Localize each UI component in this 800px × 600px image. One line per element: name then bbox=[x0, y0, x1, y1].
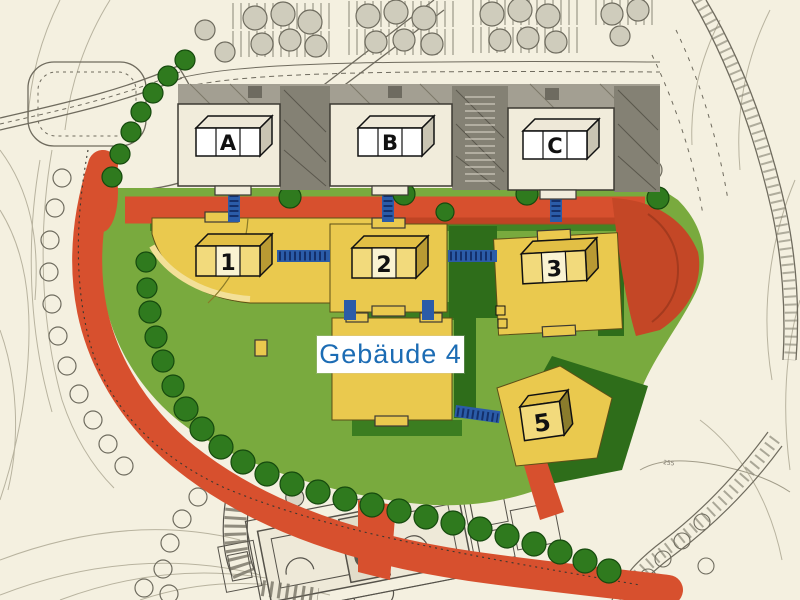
gebaeude-4-annotation: Gebäude 4 bbox=[317, 336, 464, 373]
building-b-label: B bbox=[382, 131, 398, 155]
site-plan-graphic: A B C 1 2 3 5 bbox=[0, 0, 800, 600]
label-cube-5: 5 bbox=[518, 390, 574, 441]
building-a-label: A bbox=[220, 131, 237, 155]
site-plan: A B C 1 2 3 5 bbox=[0, 0, 800, 600]
label-cube-3: 3 bbox=[521, 238, 599, 284]
building-c-label: C bbox=[547, 134, 562, 158]
building-2-label: 2 bbox=[376, 253, 391, 278]
building-3-label: 3 bbox=[546, 257, 563, 283]
building-1-label: 1 bbox=[220, 251, 235, 276]
label-cube-c: C bbox=[523, 119, 599, 159]
label-cube-b: B bbox=[358, 116, 434, 156]
gebaeude-4-text: Gebäude 4 bbox=[319, 339, 462, 370]
label-cube-a: A bbox=[196, 116, 272, 156]
label-cube-2: 2 bbox=[352, 236, 428, 278]
label-cube-1: 1 bbox=[196, 234, 272, 276]
